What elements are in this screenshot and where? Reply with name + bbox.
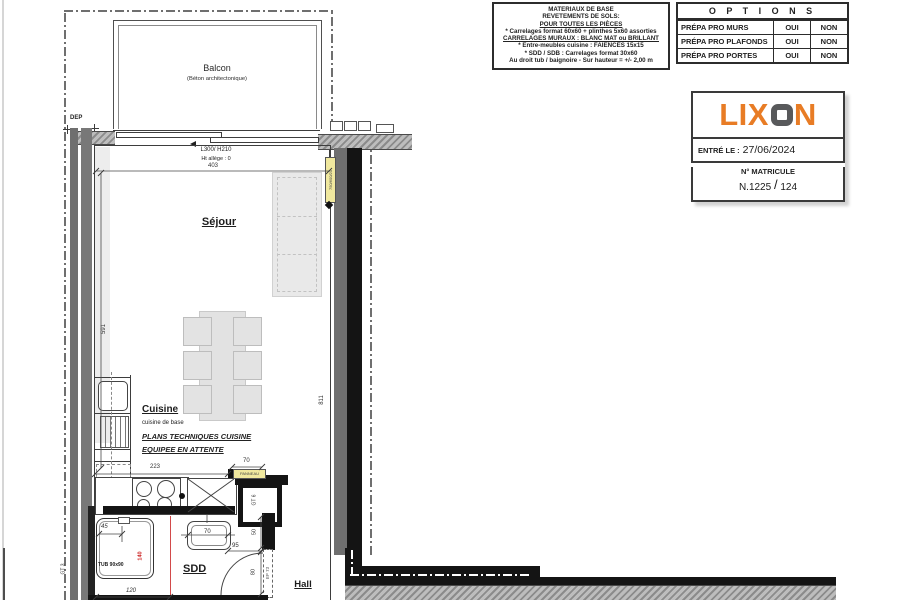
chair — [233, 317, 262, 346]
chair — [233, 351, 262, 380]
room-label-sdd: SDD — [183, 563, 206, 575]
option-no: NON — [810, 35, 847, 48]
floorplan-sheet: Balcon (Béton architectonique) DEP 750/6… — [0, 0, 900, 600]
lixon-logo: LIXN — [691, 91, 845, 139]
chair — [183, 385, 212, 414]
materials-line: * Carrelages format 60x60 + plinthes 5x6… — [494, 28, 668, 35]
property-line-right — [370, 150, 372, 555]
balcony-sublabel: (Béton architectonique) — [187, 76, 247, 82]
survey-cross-icon — [67, 125, 68, 134]
lixon-logo-text: LIX — [719, 97, 769, 133]
room-sublabel-cuisine: cuisine de base — [142, 420, 184, 427]
sofa-cushion-divider — [277, 216, 317, 217]
door-leaf-label: EP 73 — [266, 567, 271, 579]
options-table-title: O P T I O N S — [678, 4, 847, 20]
wall-segment — [70, 128, 78, 600]
room-label-sejour: Séjour — [202, 216, 236, 228]
sofa — [272, 172, 322, 297]
counter-line — [94, 413, 131, 414]
matricule-slash: / — [774, 177, 778, 192]
window-allege-label: Ht allège : 0 — [201, 156, 230, 162]
options-row: PRÉPA PRO PLAFONDS OUI NON — [678, 34, 847, 48]
room-label-hall: Hall — [294, 580, 311, 590]
wall-segment — [103, 506, 235, 514]
property-line-top — [64, 10, 334, 12]
railing-post — [376, 124, 394, 133]
scan-edge-left-dark — [3, 548, 5, 600]
option-yes: OUI — [773, 49, 810, 62]
railing-post — [344, 121, 357, 131]
duct-shaft-gt6-label: GT 6 — [253, 494, 258, 505]
window-sliding-panel — [116, 132, 222, 138]
dim-591: 591 — [101, 324, 107, 334]
option-no: NON — [810, 49, 847, 62]
options-row: PRÉPA PRO PORTES OUI NON — [678, 48, 847, 62]
duct-shaft-gt3-label: GT 3 — [62, 563, 67, 574]
entry-date-box: ENTRÉ LE : 27/06/2024 — [691, 139, 845, 163]
dim-140: 140 — [138, 551, 144, 560]
property-line-overlay-v — [351, 550, 353, 576]
materials-line: Au droit tub / baignoire - Sur hauteur =… — [494, 57, 668, 64]
window-size-label: L300/ H210 — [200, 147, 231, 154]
kitchen-note-line2: EQUIPEE EN ATTENTE — [142, 446, 224, 454]
matricule-label: N° MATRICULE — [693, 167, 843, 176]
stove-burner-icon — [157, 480, 175, 498]
wall-segment — [540, 577, 836, 585]
option-no: NON — [810, 21, 847, 34]
entry-date-value: 27/06/2024 — [743, 144, 796, 156]
matricule-suffix: 124 — [780, 182, 797, 193]
sofa-cushion-outline — [277, 177, 317, 292]
matricule-box: N° MATRICULE N.1225 / 124 — [691, 167, 845, 202]
wall-segment — [334, 148, 347, 555]
materials-line: CARRELAGES MURAUX : BLANC MAT ou BRILLAN… — [494, 35, 668, 42]
tub-drain — [118, 517, 130, 524]
counter-line — [94, 449, 131, 450]
entry-date-label: ENTRÉ LE : — [698, 146, 740, 155]
balcony-outline — [113, 20, 322, 129]
wall-hatch-left — [72, 131, 115, 145]
panel-tag: PANNEAU — [233, 469, 266, 479]
balcony-label: Balcon — [203, 64, 231, 74]
window-sliding-panel — [210, 137, 319, 143]
chair — [233, 385, 262, 414]
window-frame-top — [113, 130, 320, 131]
plumbing-point-icon — [179, 493, 185, 499]
wall-hatch-right — [318, 134, 412, 150]
wall-hatch-bottom — [345, 585, 836, 600]
option-yes: OUI — [773, 21, 810, 34]
option-label: PRÉPA PRO PORTES — [678, 49, 773, 62]
property-line-left — [64, 10, 66, 600]
kitchen-note-line1: PLANS TECHNIQUES CUISINE — [142, 433, 251, 441]
dim-70-basin: 70 — [203, 529, 212, 536]
wall-segment — [347, 148, 362, 585]
materials-line: POUR TOUTES LES PIÈCES — [494, 21, 668, 28]
layout-red-line — [170, 516, 171, 600]
sink-drainer — [100, 416, 129, 448]
tub-label: TUB 90x90 — [98, 563, 124, 569]
dim-120: 120 — [126, 588, 136, 595]
options-table: O P T I O N S PRÉPA PRO MURS OUI NON PRÉ… — [676, 2, 849, 64]
railing-post — [330, 121, 343, 131]
dim-45: 45 — [101, 524, 108, 531]
wall-segment — [88, 595, 268, 600]
railing-post — [358, 121, 371, 131]
dim-80: 80 — [251, 569, 257, 575]
counter-line — [94, 461, 131, 462]
duct-shaft-gt6: GT 6 — [238, 483, 282, 527]
radiator-tag-label: 750/600/20 — [329, 170, 333, 190]
materials-line: * Entre-meubles cuisine : FAIENCES 15x15 — [494, 42, 668, 49]
radiator-tag: 750/600/20 — [325, 157, 336, 203]
matricule-number: N.1225 — [739, 182, 771, 193]
dim-70-kitchen: 70 — [243, 458, 250, 465]
chair — [183, 351, 212, 380]
materials-line: REVETEMENTS DE SOLS: — [494, 13, 668, 20]
materials-line: MATERIAUX DE BASE — [494, 6, 668, 13]
dep-label: DEP — [70, 115, 82, 122]
panel-tag-label: PANNEAU — [234, 470, 265, 478]
lixon-logo-o — [771, 104, 793, 126]
kitchen-sink — [98, 381, 128, 411]
room-label-cuisine: Cuisine — [142, 404, 178, 415]
sofa-cushion-divider — [277, 254, 317, 255]
dim-223: 223 — [150, 464, 160, 471]
dim-403: 403 — [208, 163, 218, 170]
materials-line: * SDD / SDB : Carrelages format 30x60 — [494, 50, 668, 57]
door-leaf: EP 73 — [263, 549, 273, 598]
wall-segment — [262, 513, 275, 550]
dim-95: 95 — [232, 543, 239, 550]
materials-note-box: MATERIAUX DE BASE REVETEMENTS DE SOLS: P… — [492, 2, 670, 70]
option-yes: OUI — [773, 35, 810, 48]
lixon-logo-text: N — [794, 97, 817, 133]
title-block: LIXN ENTRÉ LE : 27/06/2024 N° MATRICULE … — [691, 91, 845, 202]
counter-line — [94, 377, 131, 378]
wall-segment — [88, 506, 95, 600]
option-label: PRÉPA PRO MURS — [678, 21, 773, 34]
room-top-edge — [95, 145, 330, 146]
property-line-overlay-h — [350, 574, 532, 576]
matricule-value: N.1225 / 124 — [693, 177, 843, 193]
property-line-balcony-right — [331, 10, 333, 128]
options-row: PRÉPA PRO MURS OUI NON — [678, 20, 847, 34]
counter-edge — [130, 375, 131, 478]
scan-edge-left — [2, 0, 4, 600]
wall-inner-face-right — [330, 145, 331, 600]
dim-50: 50 — [252, 529, 258, 535]
stove-burner-icon — [136, 481, 152, 497]
dim-811: 811 — [319, 395, 325, 405]
chair — [183, 317, 212, 346]
option-label: PRÉPA PRO PLAFONDS — [678, 35, 773, 48]
window-slider-arrow-icon — [190, 141, 196, 147]
radiator-feed-line — [329, 150, 330, 157]
